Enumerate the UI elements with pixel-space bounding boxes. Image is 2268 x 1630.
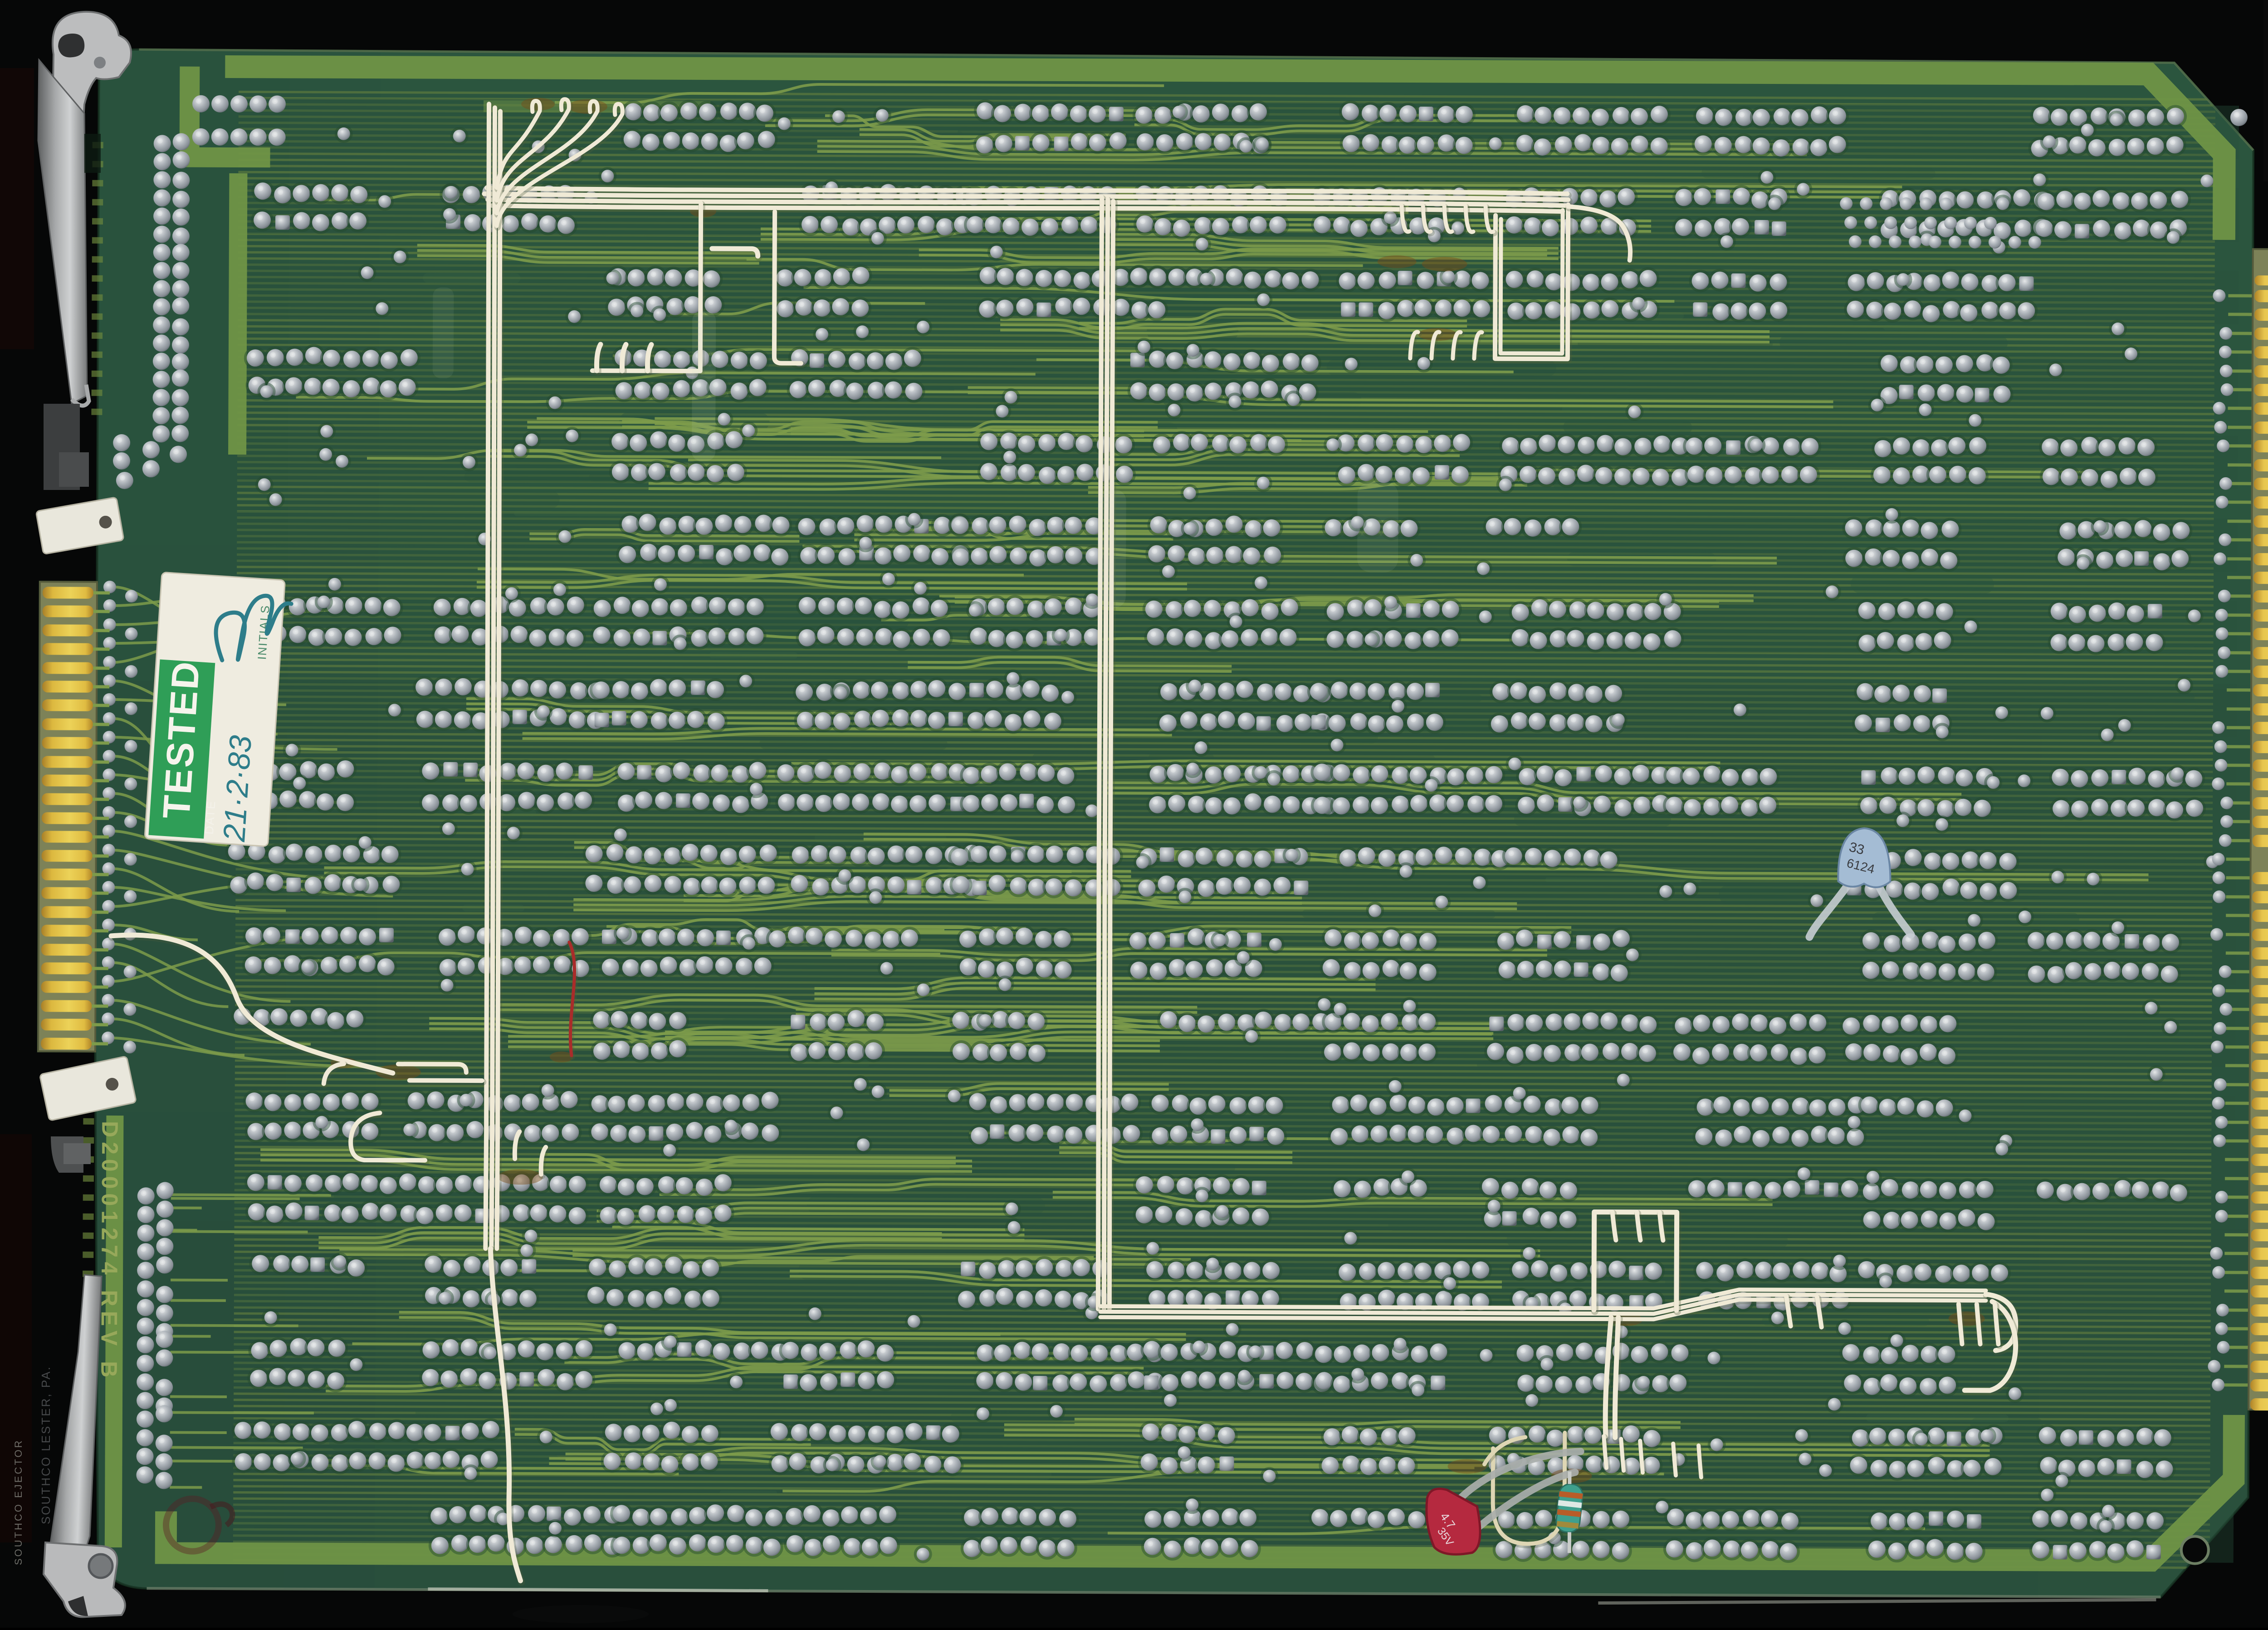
- svg-text:SOUTHCO LESTER, PA.: SOUTHCO LESTER, PA.: [39, 1366, 53, 1524]
- svg-text:SOUTHCO EJECTOR: SOUTHCO EJECTOR: [13, 1439, 24, 1565]
- svg-text:D20001274 REV B: D20001274 REV B: [96, 1121, 122, 1382]
- svg-text:DATE: DATE: [202, 800, 218, 835]
- svg-text:21·2·83: 21·2·83: [217, 734, 258, 843]
